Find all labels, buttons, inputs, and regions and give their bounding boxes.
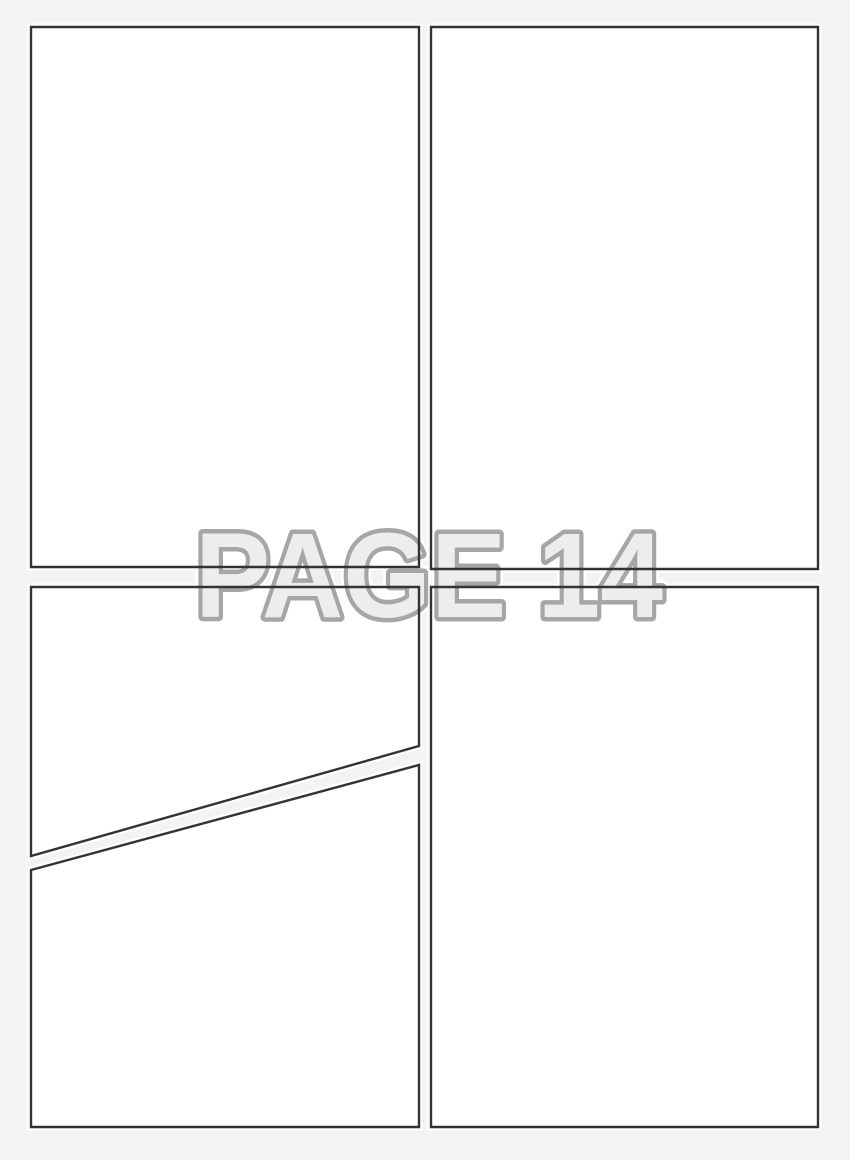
page-watermark: PAGE 14 PAGE 14 <box>195 507 663 643</box>
panel-top-right-fill <box>431 27 818 569</box>
panel-top-left-fill <box>31 27 419 567</box>
panel-bottom-right-fill <box>431 587 818 1127</box>
comic-page-canvas: PAGE 14 PAGE 14 <box>0 0 850 1160</box>
page-watermark-text: PAGE 14 <box>195 507 663 643</box>
comic-page-template: PAGE 14 PAGE 14 <box>0 0 850 1160</box>
